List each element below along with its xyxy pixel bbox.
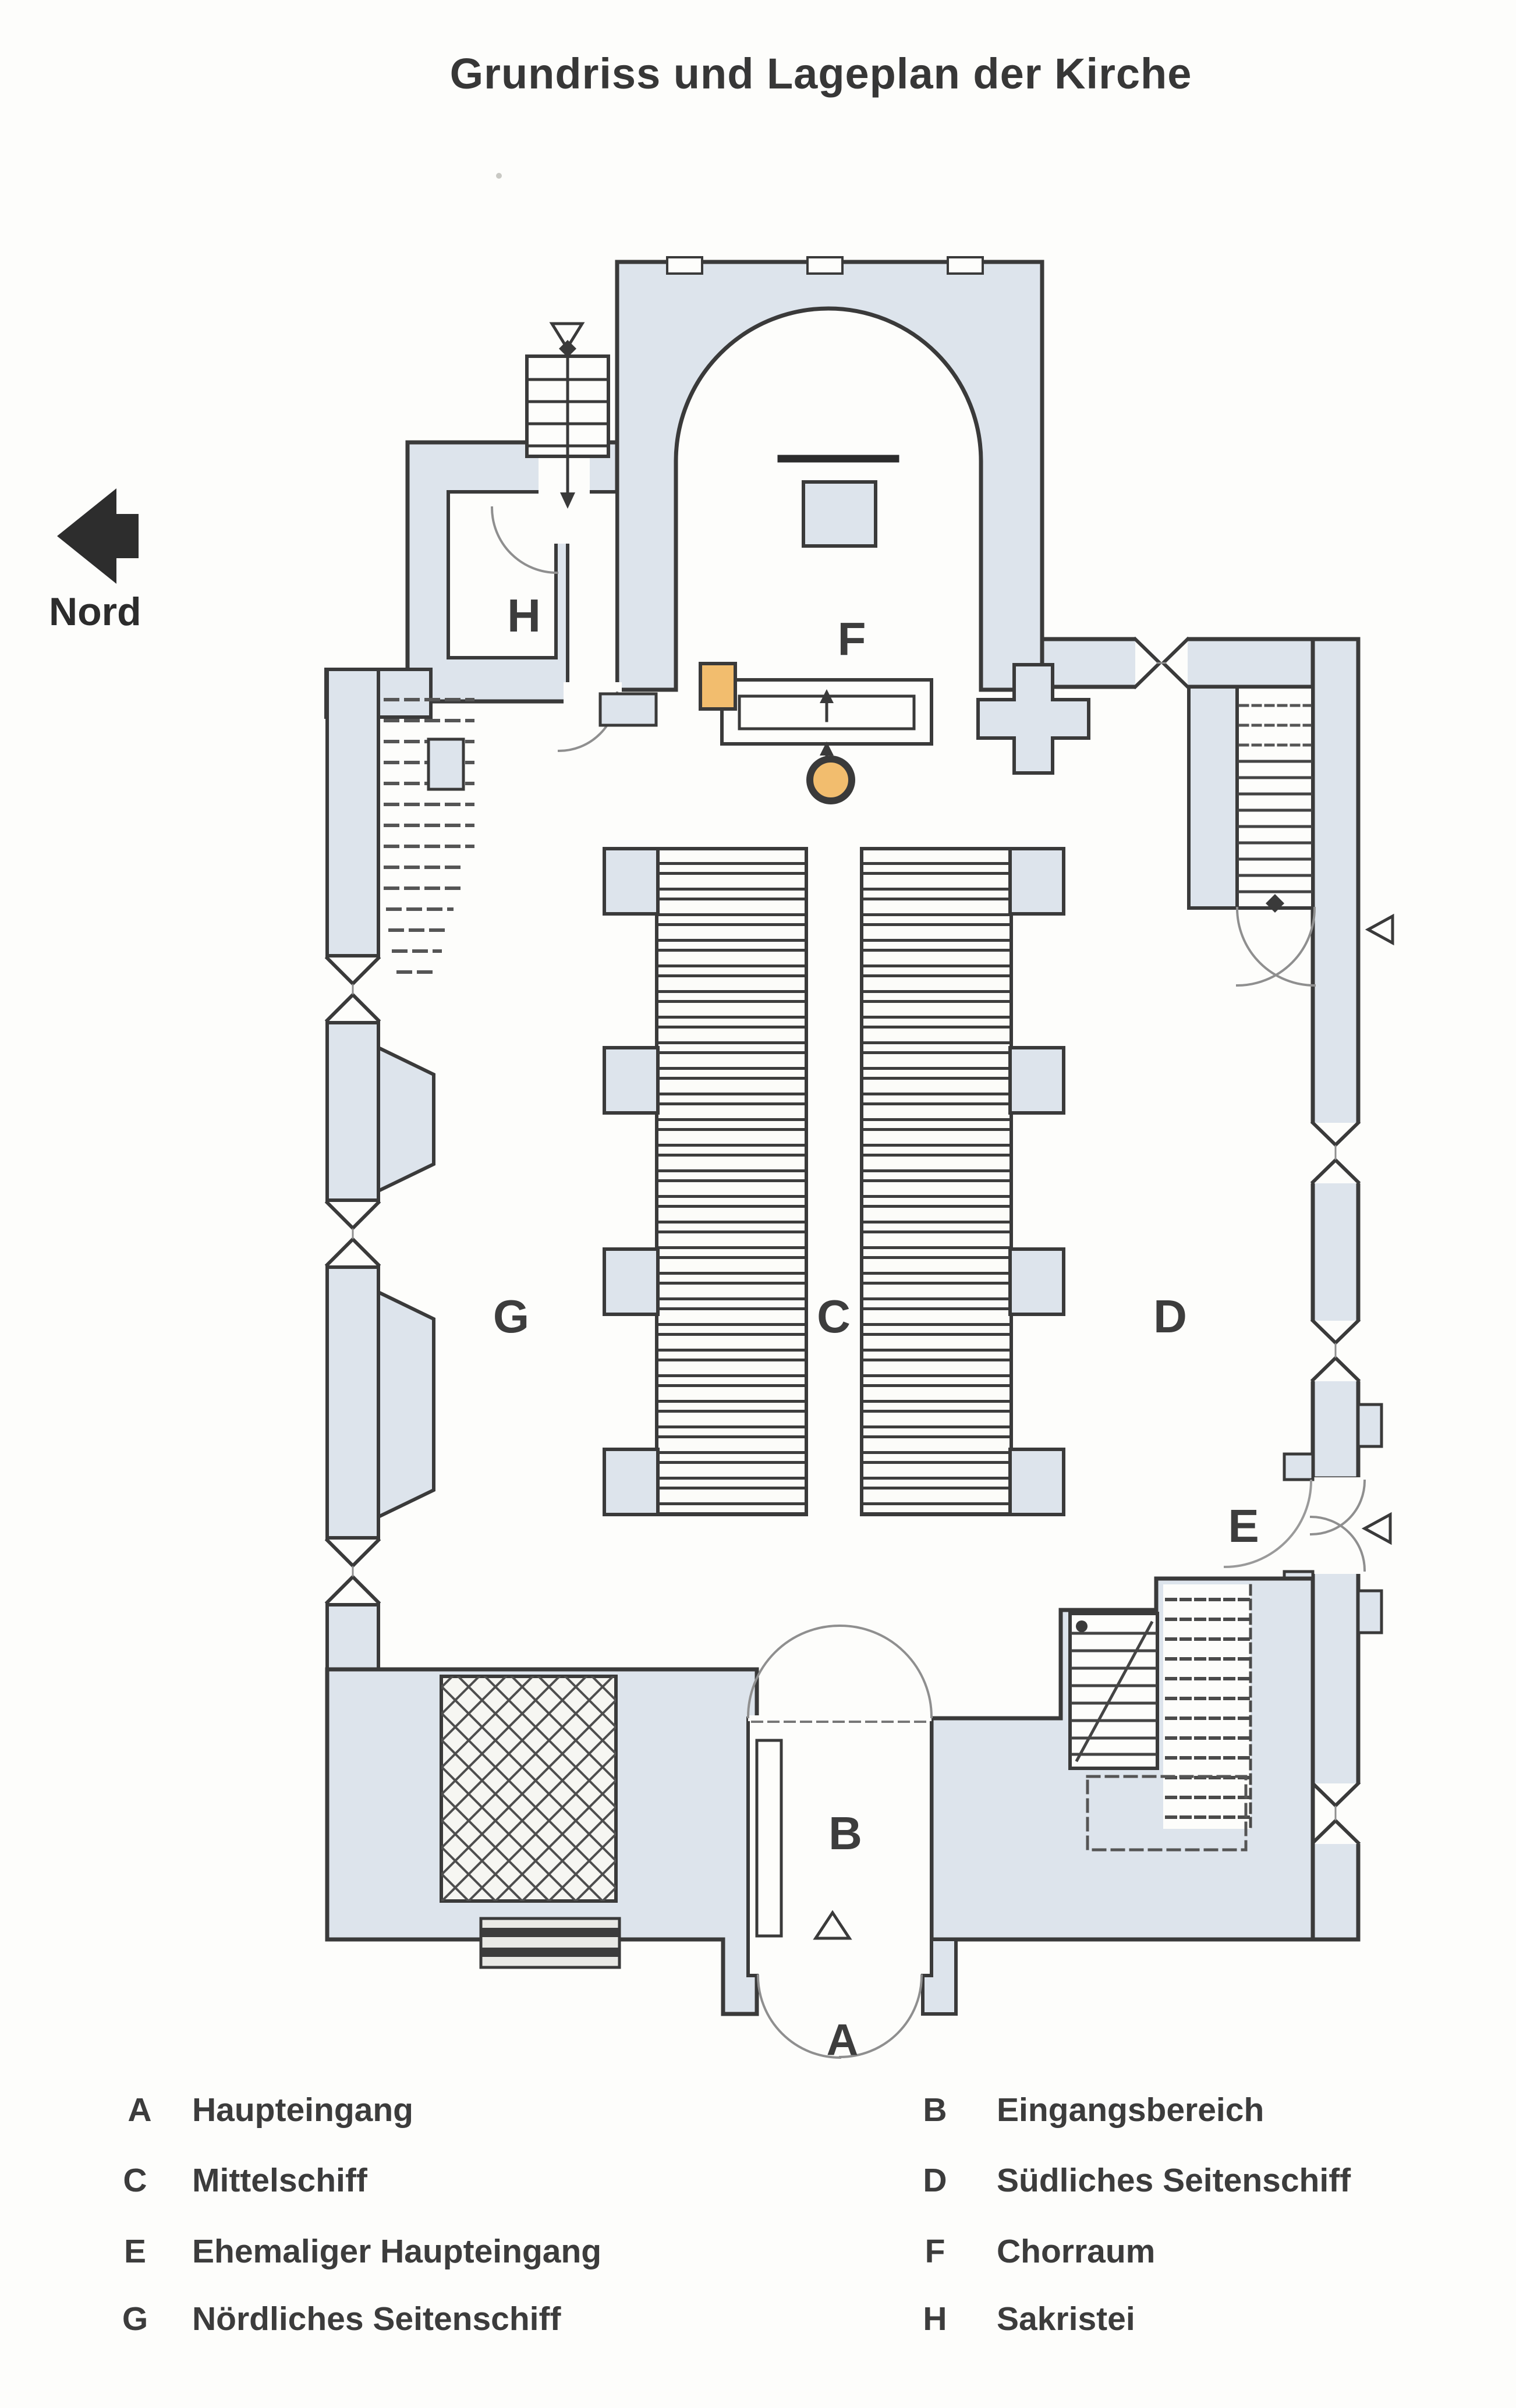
hex-pier	[378, 1048, 434, 1191]
room-label-mittelschiff: C	[817, 1290, 851, 1343]
floor-plan	[324, 257, 1393, 2058]
legend-label: Nördliches Seitenschiff	[192, 2300, 561, 2338]
page-title: Grundriss und Lageplan der Kirche	[361, 49, 1281, 98]
south-east-walls	[923, 1579, 1313, 2014]
legend-key: B	[912, 2091, 958, 2129]
legend-key: E	[112, 2232, 158, 2271]
room-label-chorraum: F	[838, 612, 866, 666]
pier-below-chancel	[600, 694, 656, 725]
inner-door-arc	[840, 1626, 931, 1717]
legend-label: Mittelschiff	[192, 2161, 367, 2200]
room-label-sued-schiff: D	[1153, 1290, 1187, 1343]
hex-pier	[378, 1292, 434, 1517]
altar-icon	[781, 459, 895, 546]
room-label-sakristei: H	[507, 589, 541, 643]
lattice-tower-area	[441, 1676, 616, 1901]
pew-blocks	[604, 849, 1064, 1515]
small-stair-sw	[481, 1918, 619, 1967]
legend-key: F	[912, 2232, 958, 2271]
south-west-walls	[327, 1669, 757, 2014]
legend-key: H	[912, 2300, 958, 2338]
legend-label: Chorraum	[997, 2232, 1155, 2271]
scan-speckle	[496, 173, 502, 179]
legend-label: Ehemaliger Haupteingang	[192, 2232, 601, 2271]
legend-label: Haupteingang	[192, 2091, 413, 2129]
gallery-stair-solid	[1070, 1613, 1157, 1768]
room-label-nord-schiff: G	[493, 1290, 529, 1343]
legend-key: G	[112, 2300, 158, 2338]
inner-door-arc	[748, 1626, 840, 1717]
porch-partition	[757, 1740, 781, 1936]
legend-key: A	[116, 2091, 163, 2129]
pew-block-right	[862, 849, 1011, 1515]
north-arrow-icon	[57, 488, 139, 584]
direction-triangle-ne	[1368, 916, 1393, 943]
room-label-eingangsbereich: B	[828, 1807, 862, 1860]
compass-label: Nord	[49, 589, 141, 634]
legend-key: D	[912, 2161, 958, 2200]
pew-block-left	[657, 849, 806, 1515]
west-wall	[324, 669, 473, 1671]
room-label-ehem-eingang: E	[1228, 1499, 1259, 1553]
direction-triangle-e	[1365, 1515, 1390, 1542]
legend-key: C	[112, 2161, 158, 2200]
legend-label: Sakristei	[997, 2300, 1135, 2338]
legend-label: Eingangsbereich	[997, 2091, 1264, 2129]
buttress-tab	[1358, 1591, 1382, 1633]
scanned-church-floorplan-page: Grundriss und Lageplan der Kirche Nord H…	[0, 0, 1516, 2408]
orange-pier-square	[700, 664, 735, 709]
orange-column-circle	[810, 759, 852, 801]
tower-stair-ne	[1189, 687, 1393, 985]
chancel-walls	[617, 257, 1042, 690]
legend-label: Südliches Seitenschiff	[997, 2161, 1351, 2200]
buttress-tab	[1358, 1405, 1382, 1446]
floor-plan-graphic	[0, 0, 1516, 2408]
wall-pilaster	[428, 739, 463, 789]
entrance-marker-label: A	[827, 2015, 859, 2066]
